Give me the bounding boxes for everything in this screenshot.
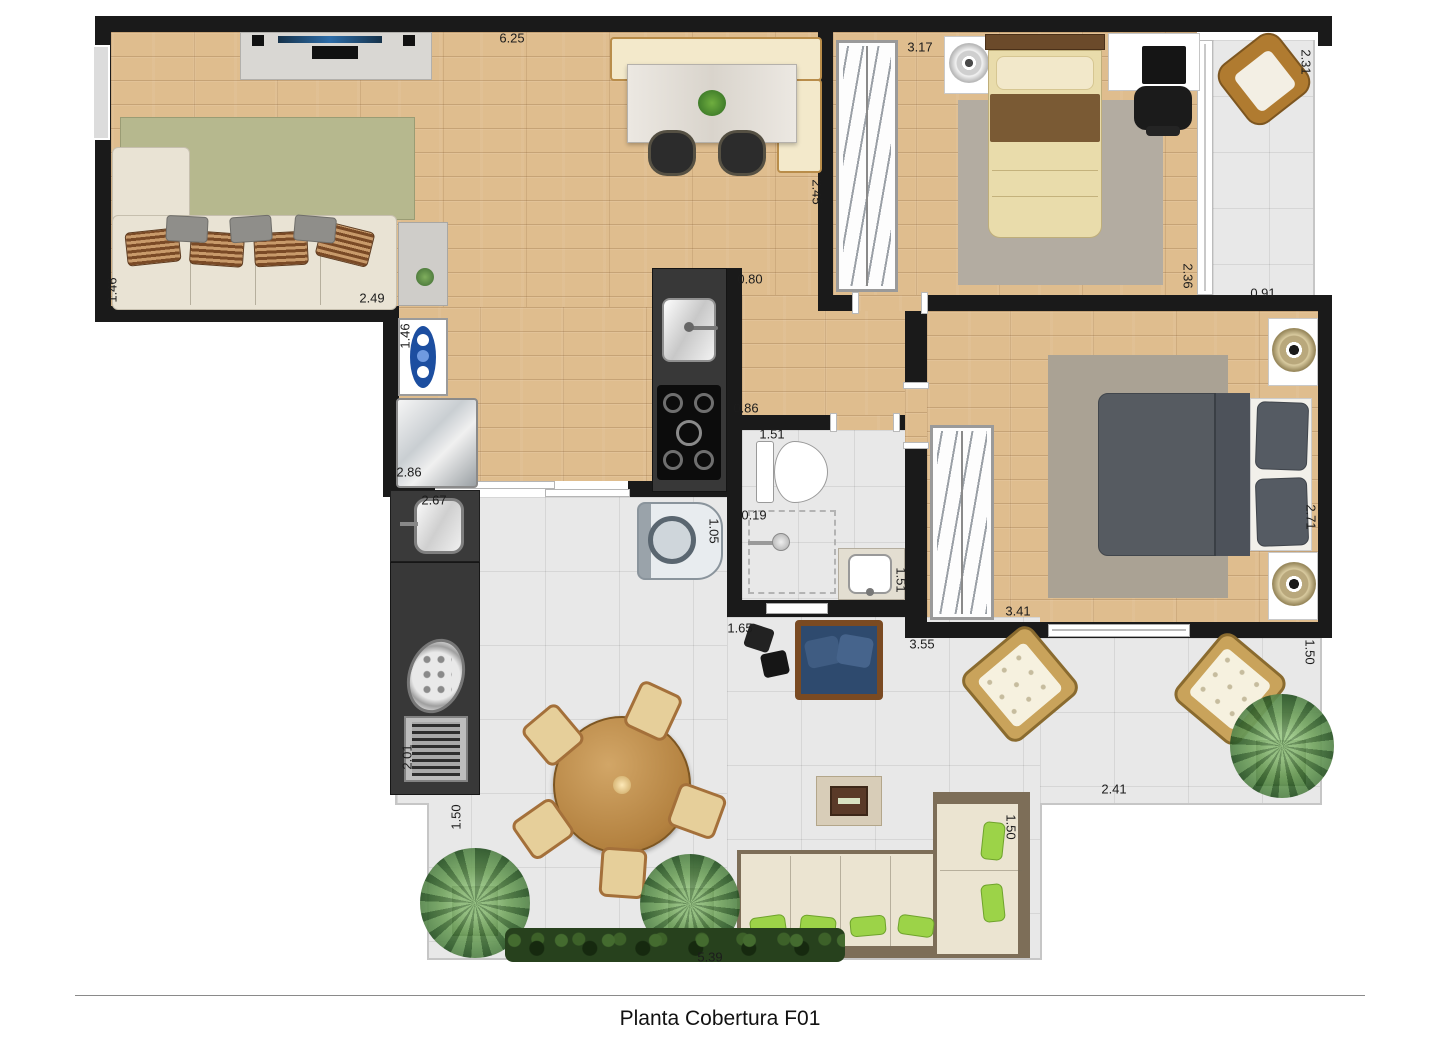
door-jamb (893, 413, 900, 432)
bed2-pillow (1255, 477, 1309, 547)
cooktop-burner (663, 450, 683, 470)
bed2-pillow (1255, 401, 1309, 471)
side-table (398, 222, 448, 306)
bathroom-door-opening (836, 415, 894, 430)
door-jamb (903, 442, 929, 449)
dimension-label: 2.41 (1101, 782, 1126, 797)
palm-plant (1230, 694, 1334, 798)
blue-decor-dot (417, 366, 429, 378)
kitchen-sliding-door-track2 (545, 489, 630, 497)
door-jamb (830, 413, 837, 432)
dimension-label: 1.51 (894, 567, 909, 592)
bedroom1-wardrobe-rail (866, 46, 868, 286)
blue-decor-dot (417, 334, 429, 346)
side-table-plant (416, 268, 434, 286)
sofa-pillow-gray (229, 215, 273, 244)
balcony-edge (1313, 40, 1315, 297)
dimension-label: 2.45 (810, 179, 825, 204)
vent-grate-ribs (412, 722, 460, 776)
page-title: Planta Cobertura F01 (620, 1007, 821, 1031)
kitchen-faucet-base (684, 322, 694, 332)
dimension-label: 1.50 (1303, 639, 1318, 664)
cooktop-burner (694, 450, 714, 470)
toilet-tank (756, 441, 774, 503)
desk-chair-base (1146, 126, 1180, 136)
dimension-label: 1.50 (449, 804, 464, 829)
title-divider (75, 995, 1365, 996)
cooktop-burner (676, 420, 702, 446)
bedroom2-door-opening (905, 388, 927, 443)
barbecue-grill-holes (420, 652, 452, 698)
cooktop-burner (694, 393, 714, 413)
washing-machine-door (648, 516, 696, 564)
sofa-pillow-green (980, 821, 1006, 861)
dimension-label: 1.50 (1004, 814, 1019, 839)
cooktop-burner (663, 393, 683, 413)
dimension-label: 2.01 (400, 744, 415, 769)
door-jamb (921, 292, 928, 314)
cd-disc-icon (949, 43, 989, 83)
dimension-label: 1.51 (759, 427, 784, 442)
tv-media-box (312, 46, 358, 59)
dimension-label: 0.80 (737, 272, 762, 287)
dimension-label: 1.46 (105, 277, 120, 302)
bed2-duvet-fold (1214, 393, 1250, 556)
dimension-label: 3.41 (1005, 604, 1030, 619)
dining-chair (648, 130, 696, 176)
dimension-label: 5.39 (697, 950, 722, 965)
dimension-label: 1.65 (727, 621, 752, 636)
shower-head (772, 533, 790, 551)
bed1-pillow (996, 56, 1094, 90)
dimension-label: 3.17 (907, 40, 932, 55)
dining-table-plant (698, 90, 726, 116)
sofa-seam (890, 856, 891, 950)
shower-area (748, 510, 836, 594)
bathroom-faucet (866, 588, 874, 596)
service-faucet (400, 522, 418, 526)
sofa-pillow-green (980, 883, 1006, 923)
dining-chair (718, 130, 766, 176)
tv-screen (278, 36, 382, 43)
dimension-label: 6.25 (499, 31, 524, 46)
hall-floor (742, 295, 905, 415)
bedroom2-wardrobe-rail (961, 431, 963, 614)
dimension-label: 0.86 (733, 401, 758, 416)
speaker-left (252, 35, 264, 46)
dimension-label: 2.67 (421, 493, 446, 508)
dimension-label: 2.49 (359, 291, 384, 306)
dimension-label: 2.36 (1181, 263, 1196, 288)
dimension-label: 2.86 (396, 465, 421, 480)
bedroom2-window-glass (1052, 629, 1186, 631)
desk-chair (1134, 86, 1192, 130)
bed2-duvet (1098, 393, 1216, 556)
gold-disc-icon (1272, 562, 1316, 606)
dimension-label: 3.55 (909, 637, 934, 652)
wall-bathroom-left (727, 268, 742, 617)
sofa-pillow-gray (165, 215, 208, 243)
dimension-label: 0.19 (741, 508, 766, 523)
table-candle (613, 776, 631, 794)
gold-disc-icon (1272, 328, 1316, 372)
blue-armchair-pillow (836, 633, 875, 668)
sofa-seam (940, 870, 1022, 871)
wall-top (95, 16, 1332, 32)
bedroom1-balcony-window-glass (1204, 44, 1206, 291)
dimension-label: 2.71 (1304, 504, 1319, 529)
terrace-chair (598, 846, 647, 899)
door-jamb (852, 292, 859, 314)
dimension-label: 1.46 (398, 323, 413, 348)
hedge-planter (505, 928, 845, 962)
terrace-edge (1040, 805, 1042, 960)
bed1-blanket-line (992, 170, 1098, 171)
blue-decor-dot (417, 350, 429, 362)
sofa-pillow-green (849, 914, 887, 937)
terrace-edge (1040, 803, 1322, 805)
wall-bedroom2-right (1318, 295, 1332, 638)
bed1-headboard (985, 34, 1105, 50)
bed1-blanket-line (992, 196, 1098, 197)
speaker-right (403, 35, 415, 46)
bathroom-window (766, 603, 828, 614)
wall-topright-corner (1318, 16, 1332, 46)
shower-arm (748, 541, 774, 545)
coffee-table-tray-item (838, 798, 860, 804)
sofa-pillow-gray (293, 214, 337, 244)
floor-plan: Planta Cobertura F01 6.253.172.312.451.4… (0, 0, 1440, 1040)
door-jamb (903, 382, 929, 389)
living-window (92, 45, 110, 140)
dimension-label: 0.91 (1250, 286, 1275, 301)
laptop-icon (1142, 46, 1186, 84)
terrace-edge (395, 803, 429, 805)
bed1-blanket-fold (990, 94, 1100, 142)
dimension-label: 2.31 (1299, 49, 1314, 74)
title-block: Planta Cobertura F01 (0, 995, 1440, 1031)
dimension-label: 1.05 (707, 518, 722, 543)
bedroom1-door-opening (858, 295, 922, 311)
